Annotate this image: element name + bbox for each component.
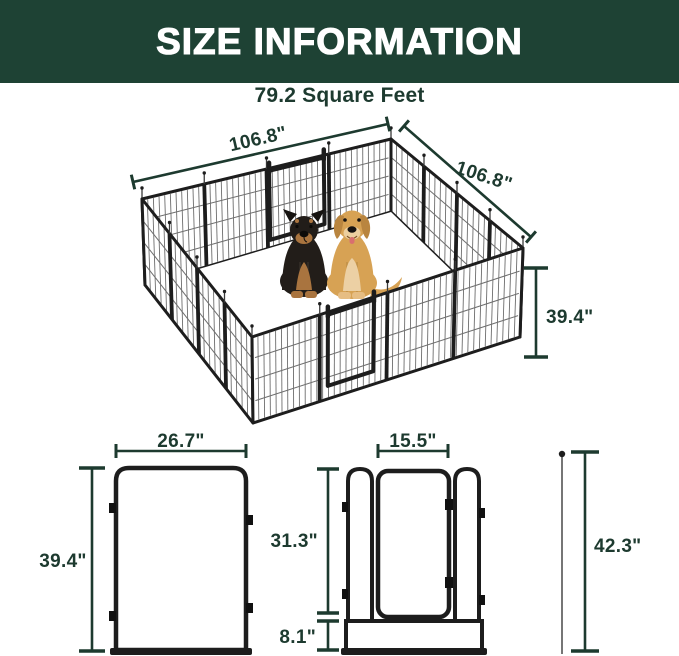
pen-width-right-label: 106.8" — [453, 157, 515, 195]
panel-width-label: 26.7" — [157, 431, 205, 452]
door-panel-diagram: 15.5" 31.3" 8.1" 42.3" — [271, 431, 642, 655]
pen-width-left-label: 106.8" — [227, 123, 289, 157]
size-diagram-canvas: 106.8" 106.8" 39.4" 26.7" 39.4" — [0, 0, 679, 656]
door-width-label: 15.5" — [389, 431, 437, 452]
ground-stake-cap — [559, 451, 565, 457]
panel-height-label: 39.4" — [39, 551, 87, 572]
door-bottom-height-label: 8.1" — [279, 627, 316, 648]
total-height-label: 42.3" — [594, 536, 642, 557]
single-panel-diagram: 26.7" 39.4" — [39, 431, 253, 655]
door-height-label: 31.3" — [271, 531, 319, 552]
pen-height-label: 39.4" — [546, 307, 594, 328]
